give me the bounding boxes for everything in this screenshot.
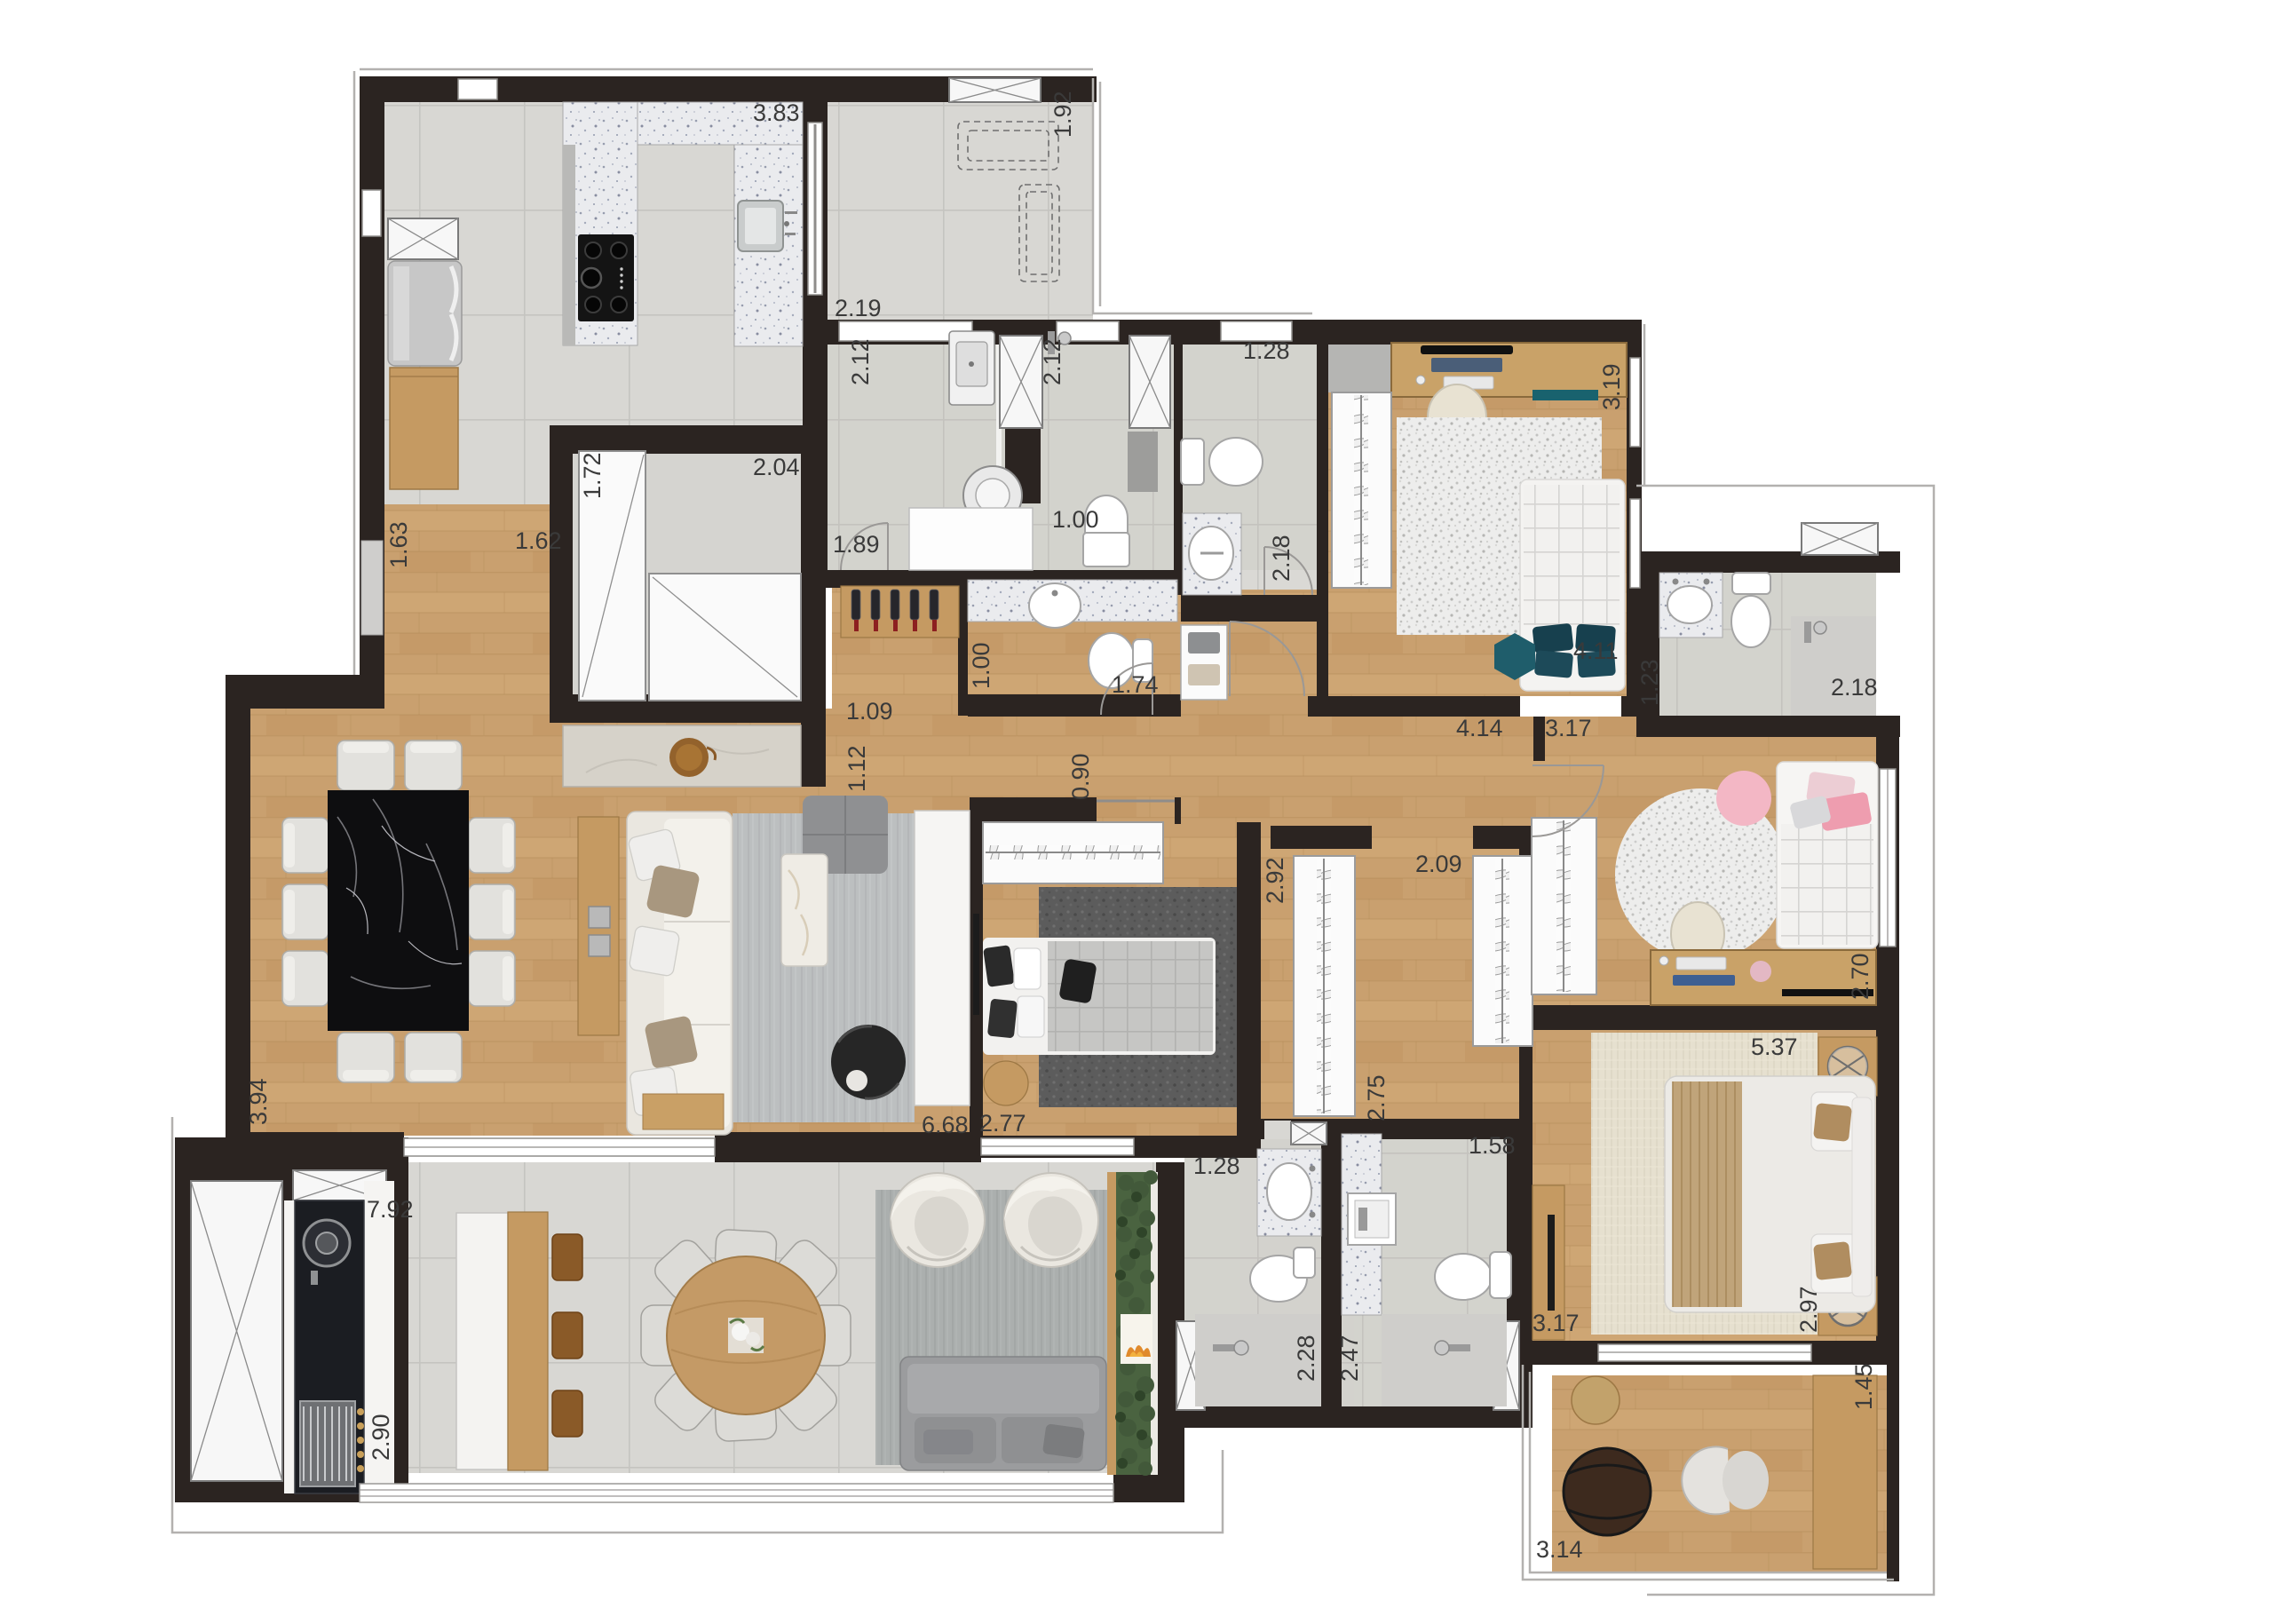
svg-text:3.83: 3.83 bbox=[753, 99, 800, 126]
svg-text:3.14: 3.14 bbox=[1536, 1536, 1583, 1563]
svg-text:2.28: 2.28 bbox=[1293, 1335, 1319, 1382]
svg-text:1.12: 1.12 bbox=[843, 745, 870, 792]
svg-text:2.04: 2.04 bbox=[753, 454, 800, 480]
svg-text:2.47: 2.47 bbox=[1336, 1335, 1363, 1382]
svg-text:2.18: 2.18 bbox=[1268, 535, 1295, 582]
svg-text:1.72: 1.72 bbox=[579, 452, 606, 499]
svg-text:2.70: 2.70 bbox=[1847, 953, 1873, 1000]
svg-text:2.77: 2.77 bbox=[979, 1110, 1026, 1137]
svg-text:1.28: 1.28 bbox=[1243, 337, 1290, 364]
svg-text:2.12: 2.12 bbox=[1039, 338, 1065, 385]
svg-text:7.92: 7.92 bbox=[367, 1196, 414, 1223]
svg-text:0.90: 0.90 bbox=[1067, 753, 1094, 800]
svg-text:1.89: 1.89 bbox=[833, 531, 880, 558]
svg-text:4.14: 4.14 bbox=[1456, 715, 1503, 741]
svg-text:2.92: 2.92 bbox=[1262, 857, 1288, 904]
svg-text:5.37: 5.37 bbox=[1751, 1034, 1798, 1060]
svg-text:1.00: 1.00 bbox=[1052, 506, 1099, 533]
svg-text:1.00: 1.00 bbox=[968, 642, 994, 689]
svg-text:2.12: 2.12 bbox=[847, 338, 874, 385]
svg-text:3.19: 3.19 bbox=[1598, 363, 1625, 410]
svg-text:1.92: 1.92 bbox=[1049, 91, 1076, 138]
svg-text:2.18: 2.18 bbox=[1831, 674, 1878, 701]
svg-text:1.28: 1.28 bbox=[1193, 1153, 1240, 1179]
svg-text:1.23: 1.23 bbox=[1636, 659, 1663, 706]
svg-text:1.63: 1.63 bbox=[385, 521, 412, 568]
svg-text:6.68: 6.68 bbox=[922, 1112, 969, 1138]
svg-text:2.09: 2.09 bbox=[1415, 851, 1462, 877]
svg-text:3.17: 3.17 bbox=[1545, 715, 1592, 741]
svg-text:1.74: 1.74 bbox=[1112, 671, 1159, 698]
svg-text:3.17: 3.17 bbox=[1532, 1310, 1580, 1336]
svg-text:2.19: 2.19 bbox=[835, 295, 882, 321]
svg-text:2.90: 2.90 bbox=[368, 1414, 394, 1461]
svg-text:3.94: 3.94 bbox=[245, 1078, 272, 1125]
svg-text:1.62: 1.62 bbox=[515, 527, 562, 554]
svg-text:1.09: 1.09 bbox=[846, 698, 893, 725]
svg-text:1.45: 1.45 bbox=[1850, 1363, 1877, 1410]
svg-text:4.11: 4.11 bbox=[1573, 638, 1619, 664]
svg-text:1.58: 1.58 bbox=[1469, 1132, 1516, 1159]
svg-text:2.75: 2.75 bbox=[1363, 1074, 1390, 1121]
svg-text:2.97: 2.97 bbox=[1795, 1286, 1822, 1333]
